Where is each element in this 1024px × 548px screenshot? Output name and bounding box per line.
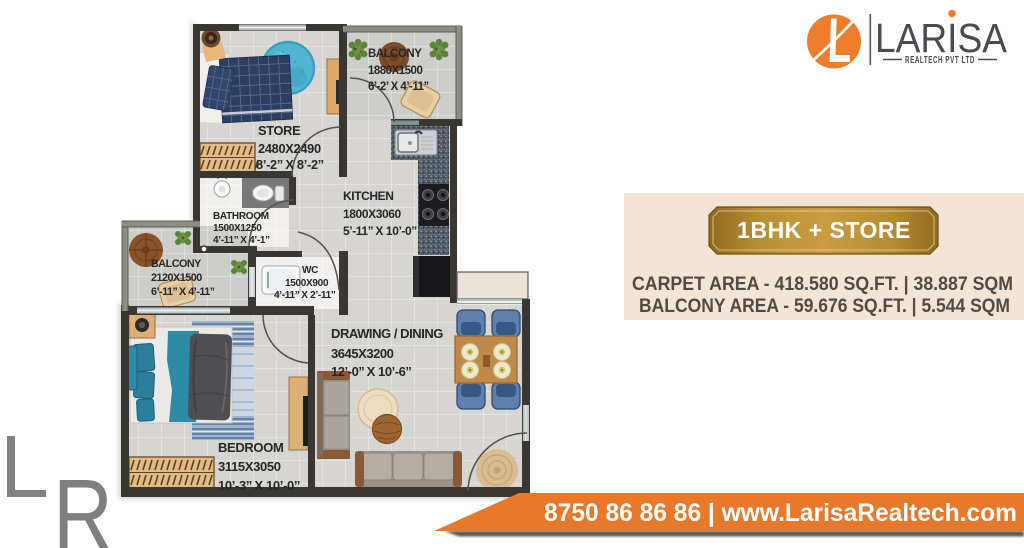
svg-text:STORE: STORE — [258, 123, 301, 138]
svg-text:3645X3200: 3645X3200 — [331, 346, 394, 361]
svg-text:4’-11’’ X 2’-11’’: 4’-11’’ X 2’-11’’ — [274, 290, 336, 301]
svg-text:REALTECH PVT LTD: REALTECH PVT LTD — [905, 54, 975, 66]
svg-text:1800X3060: 1800X3060 — [343, 207, 402, 221]
svg-text:8750 86 86 86 | www.LarisaRe: 8750 86 86 86 | www.LarisaRealtech.com — [544, 499, 1017, 527]
svg-text:4’-11’’ X 4’-1’’: 4’-11’’ X 4’-1’’ — [213, 235, 270, 246]
svg-text:1880X1500: 1880X1500 — [368, 65, 422, 77]
svg-text:3115X3050: 3115X3050 — [218, 459, 281, 474]
svg-text:1BHK + STORE: 1BHK + STORE — [737, 217, 911, 243]
svg-text:L: L — [827, 7, 853, 77]
svg-text:R: R — [53, 459, 113, 548]
svg-text:1500X1250: 1500X1250 — [213, 223, 262, 234]
svg-text:5’-11’’ X 10’-0’’: 5’-11’’ X 10’-0’’ — [343, 224, 417, 238]
svg-text:12’-0’’ X 10’-6’’: 12’-0’’ X 10’-6’’ — [331, 364, 411, 379]
svg-text:BALCONY: BALCONY — [151, 258, 202, 270]
svg-text:10’-3’’ X 10’-0’’: 10’-3’’ X 10’-0’’ — [218, 478, 300, 493]
svg-text:KITCHEN: KITCHEN — [343, 189, 394, 203]
svg-text:6’-2’ X 4’-11’’: 6’-2’ X 4’-11’’ — [368, 81, 429, 93]
svg-text:8’-2’’ X 8’-2’’: 8’-2’’ X 8’-2’’ — [256, 157, 324, 172]
svg-text:2120X1500: 2120X1500 — [151, 272, 202, 284]
svg-text:BEDROOM: BEDROOM — [218, 440, 283, 455]
svg-text:BALCONY AREA - 59.676 SQ.FT. |: BALCONY AREA - 59.676 SQ.FT. | 5.544 SQM — [639, 295, 1010, 317]
svg-text:DRAWING / DINING: DRAWING / DINING — [331, 326, 443, 341]
svg-text:6’-11’’ X 4’-11’’: 6’-11’’ X 4’-11’’ — [151, 286, 215, 298]
svg-text:1500X900: 1500X900 — [285, 278, 329, 289]
svg-text:2480X2490: 2480X2490 — [258, 141, 321, 156]
svg-text:BALCONY: BALCONY — [368, 48, 422, 60]
svg-text:CARPET AREA - 418.580 SQ.FT.: CARPET AREA - 418.580 SQ.FT. | 38.887 SQ… — [632, 273, 1013, 295]
svg-text:WC: WC — [302, 265, 318, 276]
svg-text:BATHROOM: BATHROOM — [213, 211, 269, 222]
